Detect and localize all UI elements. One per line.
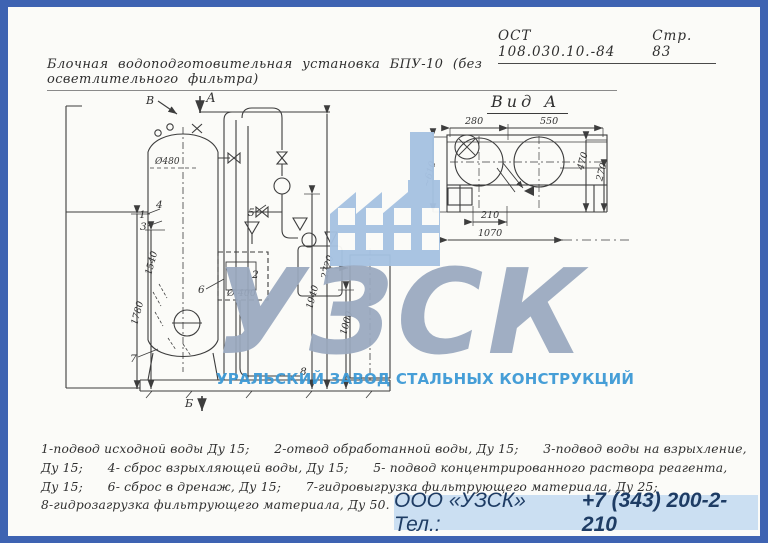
footer-phone: +7 (343) 200-2-210 [582, 489, 758, 537]
dim-label: 1540 [143, 250, 160, 276]
callout-number: 5 [248, 207, 255, 219]
dim-label: 1070 [478, 228, 502, 239]
view-a-dim-labels: 280 550 ~610 470 270 210 1070 [421, 116, 609, 239]
callout-number: 1 [139, 209, 146, 221]
callout-number: 6 [198, 284, 205, 296]
dim-label: 1780 [129, 300, 146, 326]
scanned-drawing-page: ОСТ 108.030.10.-84 Стр. 83 Блочная водоп… [0, 0, 768, 543]
watermark-acronym: УЗСК [214, 253, 588, 371]
marker-a-label: А [205, 91, 216, 106]
callout-number: 4 [155, 199, 163, 211]
dim-label: 280 [464, 116, 483, 127]
footer-company-label: ООО «УЗСК» Тел.: [394, 489, 574, 537]
callout-number: 7 [130, 353, 137, 365]
callout-number: 3 [140, 221, 147, 233]
dim-label: 470 [575, 151, 591, 172]
dim-label: 550 [540, 116, 558, 127]
watermark-company-name: УРАЛЬСКИЙ ЗАВОД СТАЛЬНЫХ КОНСТРУКЦИЙ [216, 370, 634, 388]
dim-label: 210 [480, 210, 499, 221]
dim-label: Ø480 [154, 156, 180, 167]
footer-company-bar: ООО «УЗСК» Тел.: +7 (343) 200-2-210 [394, 495, 758, 530]
marker-bottom-label: Б [184, 397, 193, 410]
marker-b-label: В [145, 94, 154, 107]
